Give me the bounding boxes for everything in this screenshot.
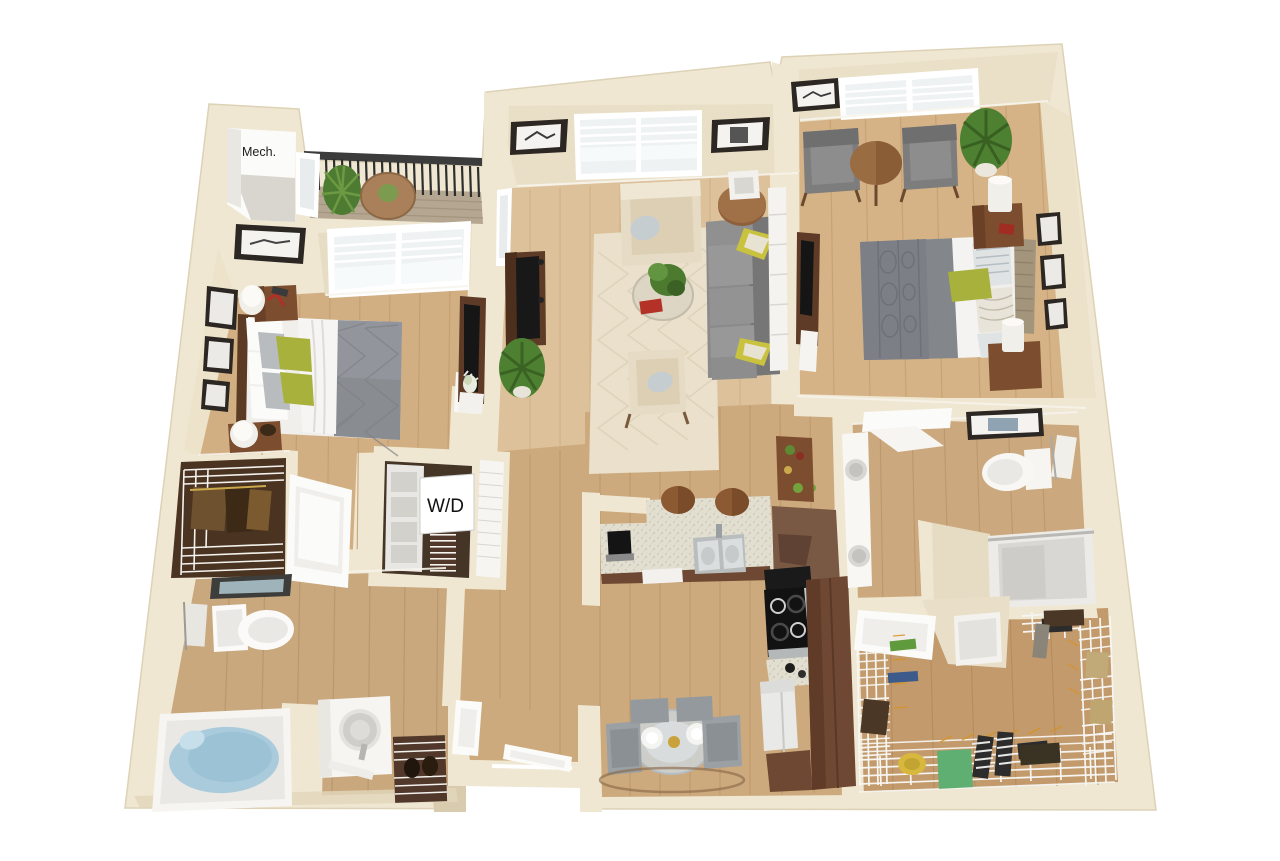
svg-text:Mech.: Mech. bbox=[242, 145, 276, 159]
svg-text:W/D: W/D bbox=[427, 496, 464, 517]
